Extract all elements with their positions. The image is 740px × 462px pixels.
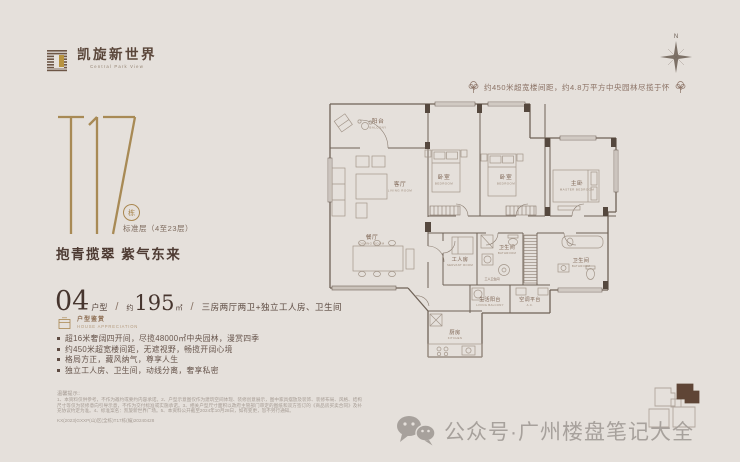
room-label-en: LIVING BALCONY: [476, 303, 504, 307]
room-label-en: A.C.: [527, 303, 534, 307]
wardrobes-and-shaft: [430, 206, 537, 283]
distance-annotation: 约450米超宽楼间距，约4.8万平方中央园林尽揽于怀: [468, 80, 686, 94]
unit-number: 04: [55, 288, 89, 315]
room-label: 阳台: [372, 117, 385, 125]
room-labels: 阳台 BALCONY 客厅 LIVING ROOM 餐厅 DINING ROOM…: [359, 117, 594, 340]
brand-name: 凯旋新世界: [77, 47, 157, 62]
room-label: 主卧: [571, 179, 584, 187]
room-label: 卧室: [500, 173, 513, 181]
list-item: 独立工人房、卫生间，动线分离，奢享私密: [57, 366, 259, 377]
bullet-square: [57, 348, 60, 351]
bullet-text: 独立工人房、卫生间，动线分离，奢享私密: [65, 366, 219, 375]
area-unit: ㎡: [176, 303, 183, 313]
slogan: 抱青揽翠 紫气东来: [56, 243, 181, 263]
floors-label: 标准层（4至23层）: [123, 223, 193, 234]
bullet-square: [57, 358, 60, 361]
wechat-icon: [396, 414, 436, 447]
brand-name-en: Central Park View: [77, 64, 157, 69]
room-label-en: SERVANT ROOM: [447, 263, 473, 267]
bullet-text: 格局方正，藏风纳气，尊享人生: [65, 355, 178, 364]
bullet-text: 超16米奢阔四开间，尽揽48000㎡中央园林，漫赏四季: [65, 334, 259, 343]
room-label: 客厅: [394, 180, 407, 188]
appreciation-title-en: HOUSE APPRECIATION: [77, 324, 138, 330]
room-label: 卧室: [438, 173, 451, 181]
room-label-en: LIVING ROOM: [388, 189, 413, 193]
tower-dong-label: 栋: [128, 208, 135, 218]
room-label: 卫生间: [499, 244, 515, 251]
bullet-square: [57, 337, 60, 340]
room-label: 生活阳台: [479, 296, 501, 303]
room-label-en: BEDROOM: [435, 182, 453, 186]
appreciation-title: 户型鉴赏: [77, 317, 138, 324]
disclaimer: 温馨提示： 1、本资料仅供参考，不作为邀约或要约内容承诺。2、户型示意图仅作为建…: [57, 391, 362, 424]
compass-north-label: N: [674, 34, 678, 40]
tree-icon: [675, 80, 686, 94]
tower-dong-badge: 栋: [123, 204, 140, 221]
watermark: 公众号·广州楼盘笔记大全: [396, 414, 694, 447]
room-label: 工人卫生间: [484, 276, 499, 281]
list-item: 超16米奢阔四开间，尽揽48000㎡中央园林，漫赏四季: [57, 334, 259, 345]
room-label: 卫生间: [573, 256, 590, 264]
room-label: 工人房: [452, 255, 469, 263]
compass-icon: N: [658, 31, 694, 79]
room-label-en: BATHROOM: [572, 264, 591, 268]
area-approx: 约: [126, 303, 133, 313]
outer-walls: [330, 104, 616, 357]
unit-number-suffix: 户型: [91, 302, 107, 313]
poster-canvas: { "brand": {"name": "凯旋新世界", "name_en": …: [0, 0, 740, 462]
selling-points-list: 超16米奢阔四开间，尽揽48000㎡中央园林，漫赏四季 约450米超宽楼间距，无…: [57, 334, 259, 377]
inner-walls: [330, 104, 616, 313]
room-label: 空调平台: [519, 296, 541, 303]
tree-icon: [468, 80, 479, 94]
room-label-en: KITCHEN: [448, 336, 462, 340]
brand-logo-icon: [46, 47, 70, 74]
booklet-icon: [58, 317, 71, 330]
room-label: 厨房: [449, 328, 460, 336]
bullet-text: 约450米超宽楼间距，无遮视野，畅揽开阔心境: [65, 345, 233, 354]
annotation-text: 约450米超宽楼间距，约4.8万平方中央园林尽揽于怀: [484, 82, 670, 93]
room-label: 餐厅: [366, 233, 379, 241]
appreciation-header: 户型鉴赏 HOUSE APPRECIATION: [58, 317, 138, 330]
highlighted-unit: [677, 384, 699, 403]
unit-spec-line: 04 户型 / 约 195 ㎡ / 三房两厅两卫+独立工人房、卫生间: [55, 288, 342, 315]
list-item: 格局方正，藏风纳气，尊享人生: [57, 355, 259, 366]
watermark-text: 公众号·广州楼盘笔记大全: [444, 416, 694, 446]
disclaimer-body: 1、本资料仅供参考，不作为邀约或要约内容承诺。2、户型示意图仅作为建筑空间体现、…: [57, 397, 362, 414]
room-label-en: BALCONY: [369, 126, 386, 130]
separator: /: [115, 301, 118, 313]
list-item: 约450米超宽楼间距，无遮视野，畅揽开阔心境: [57, 345, 259, 356]
unit-area: 195: [134, 291, 174, 315]
brand-logo: 凯旋新世界 Central Park View: [46, 47, 157, 74]
room-label-en: BEDROOM: [497, 182, 515, 186]
disclaimer-code: KX(2023)GXXP(山)区(全栋)T17栋(编)20240428: [57, 418, 362, 424]
room-label-en: MASTER BEDROOM: [560, 188, 595, 192]
separator: /: [191, 301, 194, 313]
floor-plan: 阳台 BALCONY 客厅 LIVING ROOM 餐厅 DINING ROOM…: [320, 96, 620, 364]
room-label-en: BATHROOM: [498, 251, 517, 255]
bullet-square: [57, 369, 60, 372]
room-label-en: DINING ROOM: [359, 242, 384, 246]
